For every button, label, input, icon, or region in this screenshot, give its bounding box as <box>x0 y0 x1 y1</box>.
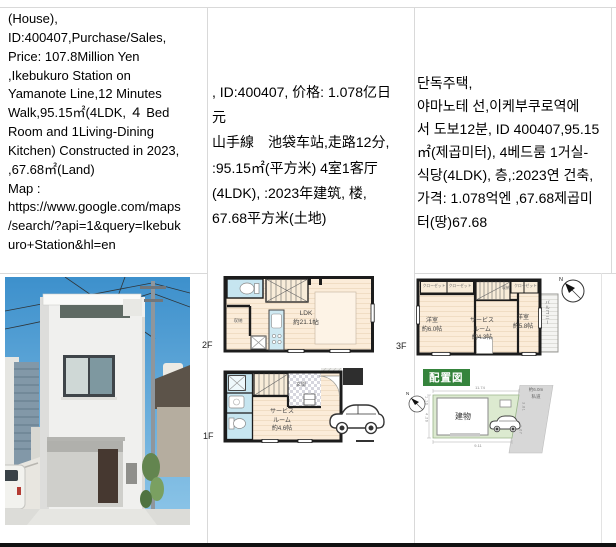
site-plan: N 建物 約6.0m 私道 11.74 9.11 1.10 4.26 3.81 … <box>405 385 605 470</box>
listing-text-zh: , ID:400407, 价格: 1.078亿日 元 山手線 池袋车站,走路12… <box>212 80 414 231</box>
room-label-service-1f: サービス ルーム 約4.6帖 <box>263 408 301 434</box>
site-dim-bottom: 9.11 <box>463 443 493 449</box>
toilet-icon <box>227 279 263 298</box>
floor-label-3f: 3F <box>396 341 407 351</box>
room-label-west-left: 洋室 約6.0帖 <box>414 317 450 334</box>
washer-pan-icon <box>251 336 266 349</box>
site-dim-left-mid: 4.26 <box>423 413 429 429</box>
site-label-road: 約6.0m 私道 <box>521 387 551 400</box>
dark-block-1f <box>343 368 363 385</box>
room-label-balcony: バルコニー <box>544 300 551 352</box>
site-dim-top: 11.74 <box>465 385 495 391</box>
room-label-closet-2f: 収納 <box>224 318 252 325</box>
svg-text:N: N <box>406 391 409 396</box>
photo-front-door <box>98 449 118 503</box>
floorplan-1f: サービス ルーム 約4.6帖 玄関 <box>218 366 390 470</box>
toilet-icon-1f <box>229 418 246 429</box>
floorplan-2f: LDK 約21.1帖 収納 <box>222 274 376 354</box>
site-dim-right-top: 3.81 <box>520 402 526 416</box>
stairs-2f <box>266 279 308 302</box>
washbasin-icon <box>229 396 244 408</box>
photo-neighbor-house <box>155 363 190 477</box>
site-porch <box>500 400 511 407</box>
svg-text:N: N <box>559 277 563 283</box>
label-closet-b: クローゼット <box>448 284 472 290</box>
row-divider-left <box>0 273 207 274</box>
compass-icon-3f: N <box>559 277 584 302</box>
site-dim-right-bottom: 1.67 <box>517 425 523 439</box>
listing-text-en: (House), ID:400407,Purchase/Sales, Price… <box>8 10 206 255</box>
room-label-ldk: LDK 約21.1帖 <box>283 309 329 328</box>
photo-meter-box <box>126 463 137 484</box>
room-label-service-3f: サービス ルーム 約4.3帖 <box>464 317 500 343</box>
table-top-border <box>0 7 616 8</box>
photo-main-house <box>40 294 145 513</box>
stairs-1f <box>254 374 288 396</box>
site-dim-left-top: 1.10 <box>423 396 429 410</box>
label-closet-a: クローゼット <box>421 284 447 290</box>
room-label-west-right: 洋室 約5.8帖 <box>507 314 539 331</box>
floorplan-3f: N 洋室 約6.0帖 サービス ルーム 約4.3帖 洋室 約5.8帖 バルコニー… <box>414 272 592 367</box>
site-label-building: 建物 <box>445 411 481 423</box>
floor-label-2f: 2F <box>202 340 213 350</box>
listing-sheet: (House), ID:400407,Purchase/Sales, Price… <box>0 0 616 547</box>
house-photo <box>5 277 190 525</box>
washer-pan-icon-1f <box>229 376 246 391</box>
bottom-border <box>0 543 616 547</box>
listing-text-ko: 단독주택, 야마노테 선,이케부쿠로역에 서 도보12분, ID 400407,… <box>417 72 615 234</box>
kitchen-counter-icon <box>269 310 284 350</box>
photo-white-car <box>5 465 25 509</box>
site-approach <box>450 433 480 437</box>
column-divider-1 <box>207 7 208 545</box>
room-label-entrance: 玄関 <box>290 382 312 389</box>
photo-driveway <box>27 509 157 525</box>
floor-label-1f: 1F <box>203 431 214 441</box>
shoe-cabinet-icon <box>304 394 315 405</box>
label-closet-c: クローゼット <box>513 284 538 290</box>
site-plan-title: 配置図 <box>423 369 470 386</box>
